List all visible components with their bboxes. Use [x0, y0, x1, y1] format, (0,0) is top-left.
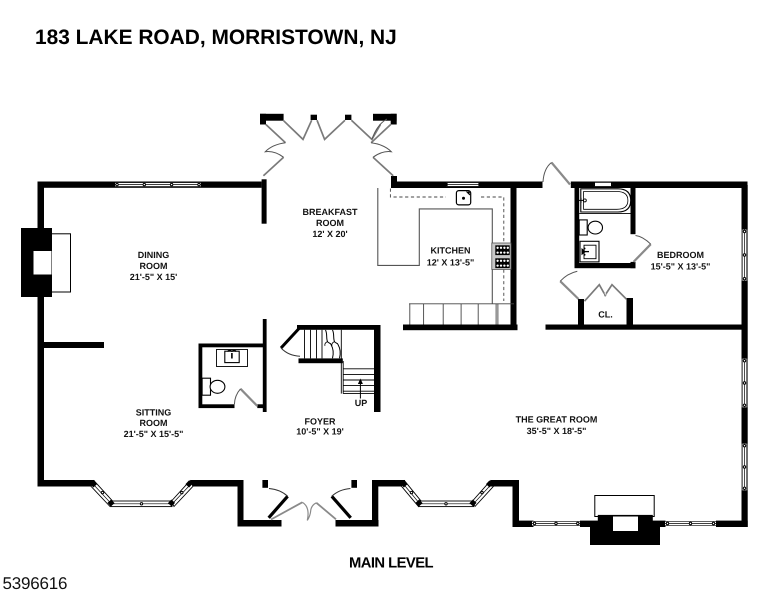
svg-text:BREAKFAST: BREAKFAST [302, 207, 358, 217]
svg-text:ROOM: ROOM [140, 418, 168, 428]
svg-text:FOYER: FOYER [304, 417, 336, 427]
svg-text:21'-5" X 15'-5": 21'-5" X 15'-5" [124, 429, 184, 439]
svg-text:183 LAKE ROAD, MORRISTOWN, NJ: 183 LAKE ROAD, MORRISTOWN, NJ [35, 26, 397, 49]
svg-text:12' X 20': 12' X 20' [312, 229, 347, 239]
svg-text:KITCHEN: KITCHEN [431, 246, 471, 256]
svg-text:5396616: 5396616 [3, 574, 68, 593]
svg-text:SITTING: SITTING [136, 408, 172, 418]
svg-text:DINING: DINING [138, 250, 170, 260]
svg-text:21'-5" X 15': 21'-5" X 15' [130, 272, 178, 282]
svg-text:ROOM: ROOM [140, 261, 168, 271]
svg-text:35'-5" X 18'-5": 35'-5" X 18'-5" [527, 426, 587, 436]
svg-text:ROOM: ROOM [316, 218, 344, 228]
svg-text:UP: UP [355, 398, 368, 408]
svg-text:10'-5" X 19': 10'-5" X 19' [296, 427, 344, 437]
svg-text:BEDROOM: BEDROOM [657, 250, 704, 260]
svg-text:CL.: CL. [598, 309, 613, 319]
svg-text:12' X 13'-5": 12' X 13'-5" [427, 257, 475, 267]
svg-text:THE GREAT ROOM: THE GREAT ROOM [516, 415, 598, 425]
svg-text:15'-5" X 13'-5": 15'-5" X 13'-5" [651, 261, 711, 271]
svg-text:MAIN LEVEL: MAIN LEVEL [349, 555, 434, 571]
